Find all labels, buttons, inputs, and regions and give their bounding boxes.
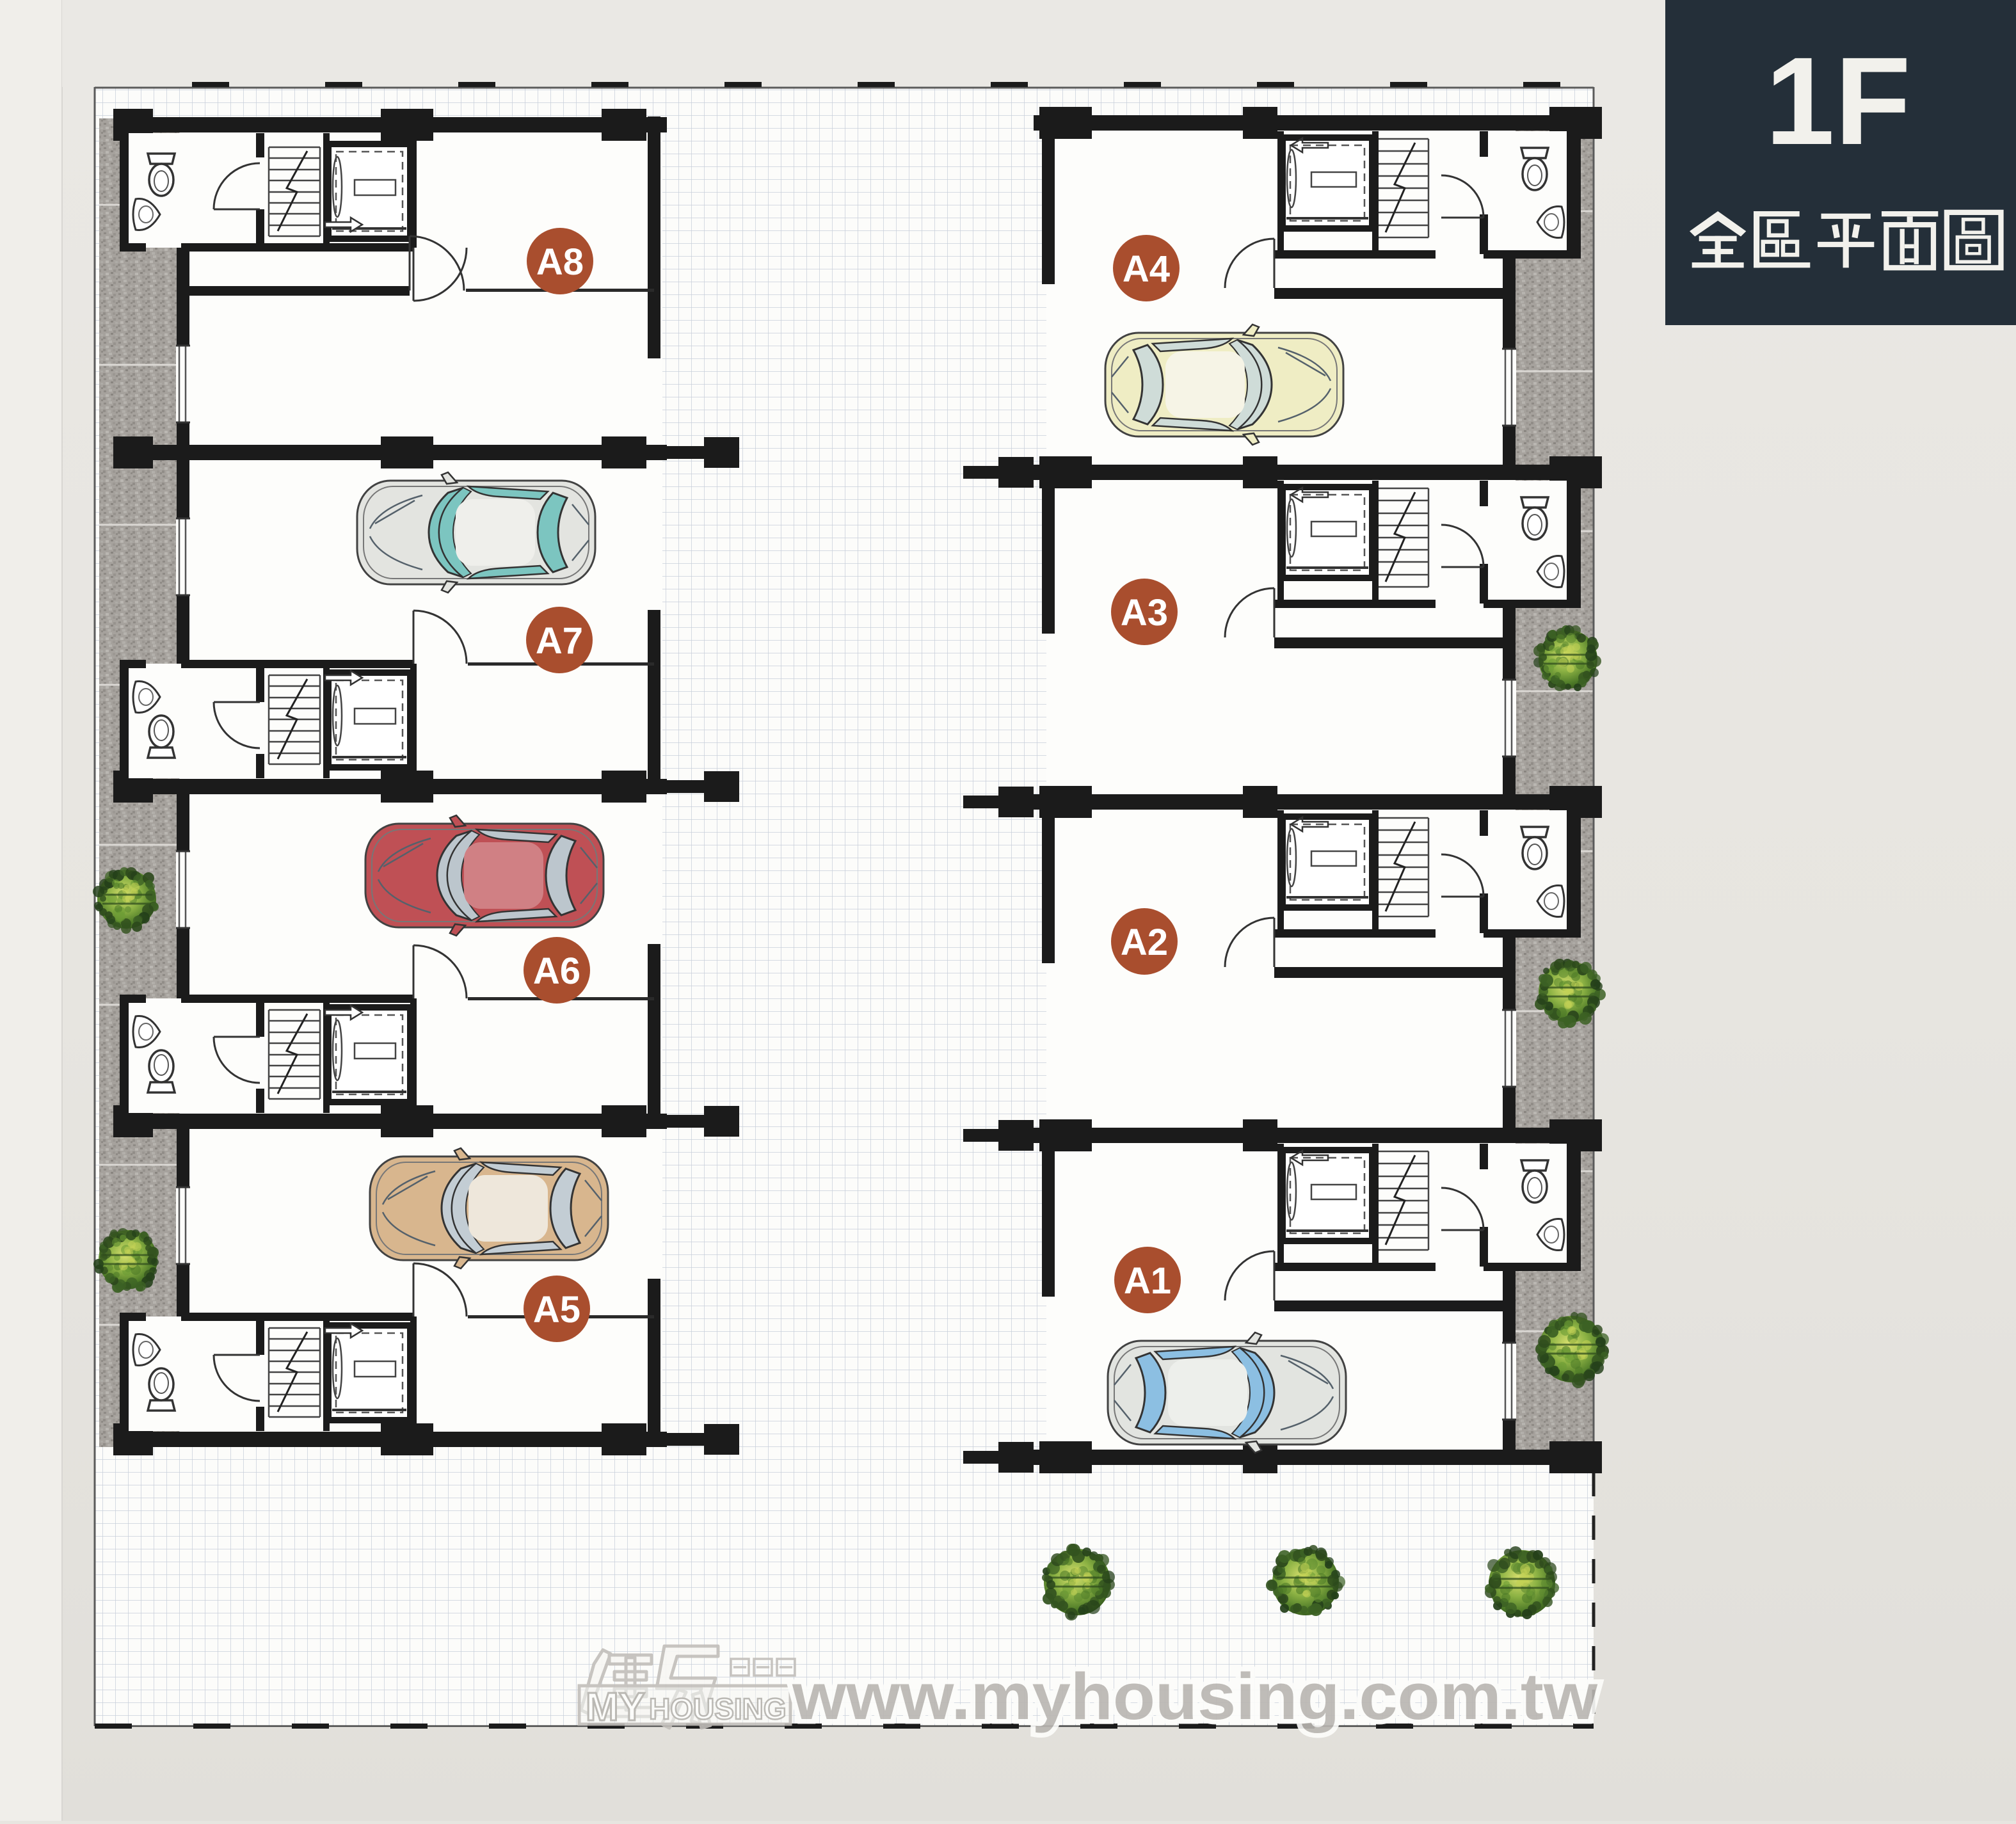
svg-text:www.myhousing.com.tw: www.myhousing.com.tw — [792, 1660, 1598, 1733]
svg-text:A7: A7 — [536, 620, 583, 662]
svg-text:A2: A2 — [1121, 922, 1168, 963]
svg-text:A6: A6 — [533, 950, 580, 992]
svg-text:A5: A5 — [533, 1289, 580, 1331]
svg-text:MY: MY — [586, 1685, 645, 1729]
svg-text:A4: A4 — [1123, 248, 1170, 290]
svg-text:A1: A1 — [1124, 1260, 1171, 1302]
svg-text:1F: 1F — [1765, 31, 1911, 171]
svg-text:A3: A3 — [1121, 592, 1168, 634]
svg-text:A8: A8 — [536, 241, 584, 283]
svg-text:HOUSING: HOUSING — [649, 1692, 787, 1725]
